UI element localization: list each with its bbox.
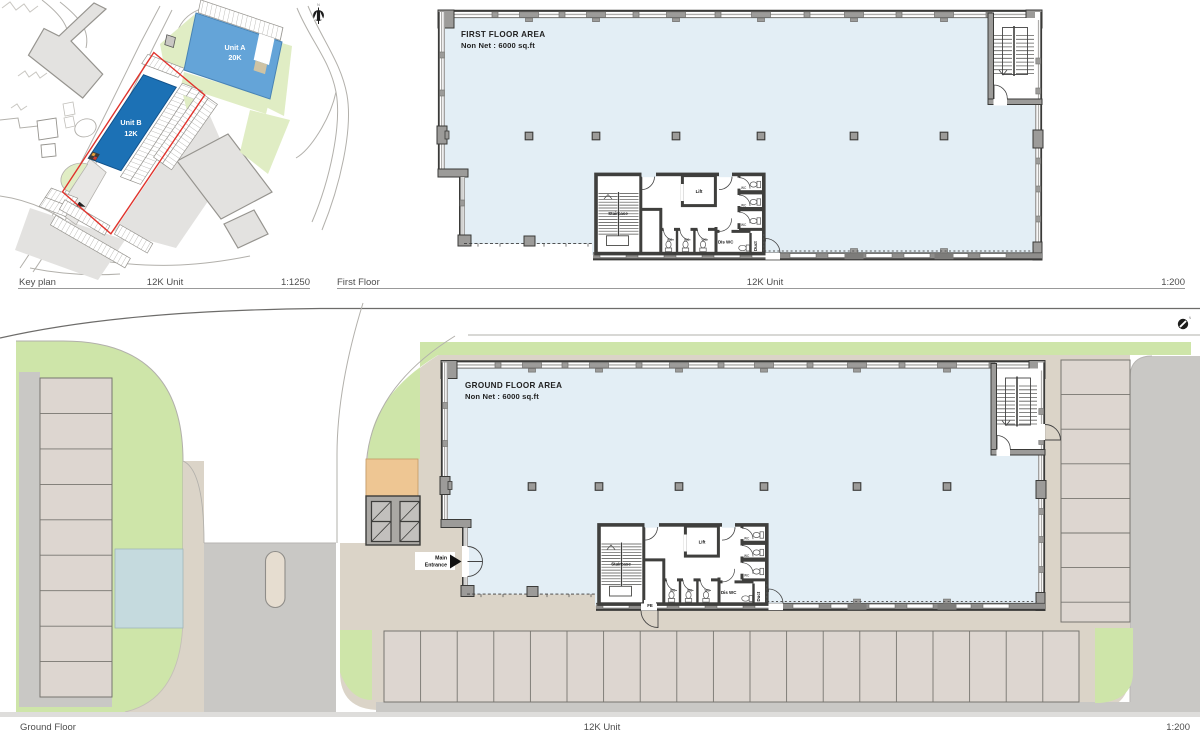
svg-text:Non Net : 6000 sq.ft: Non Net : 6000 sq.ft [465, 392, 539, 401]
svg-text:1:200: 1:200 [1166, 722, 1190, 733]
svg-text:Unit A: Unit A [225, 43, 246, 52]
svg-text:12K: 12K [124, 129, 138, 138]
svg-text:Non Net : 6000 sq.ft: Non Net : 6000 sq.ft [461, 41, 535, 50]
svg-text:FIRST FLOOR AREA: FIRST FLOOR AREA [461, 30, 545, 39]
svg-text:Ground Floor: Ground Floor [20, 722, 76, 733]
svg-text:FE: FE [647, 603, 653, 608]
svg-text:Main: Main [435, 556, 447, 562]
svg-text:12K Unit: 12K Unit [584, 722, 621, 733]
svg-text:12K Unit: 12K Unit [147, 277, 184, 288]
svg-text:Key plan: Key plan [19, 277, 56, 288]
svg-text:Entrance: Entrance [425, 563, 447, 569]
svg-text:20K: 20K [228, 53, 242, 62]
svg-text:N: N [317, 2, 320, 7]
svg-text:First Floor: First Floor [337, 277, 380, 288]
svg-text:1:200: 1:200 [1161, 277, 1185, 288]
svg-text:Unit B: Unit B [120, 118, 141, 127]
svg-text:12K Unit: 12K Unit [747, 277, 784, 288]
svg-text:GROUND FLOOR AREA: GROUND FLOOR AREA [465, 381, 562, 390]
svg-text:1:1250: 1:1250 [281, 277, 310, 288]
